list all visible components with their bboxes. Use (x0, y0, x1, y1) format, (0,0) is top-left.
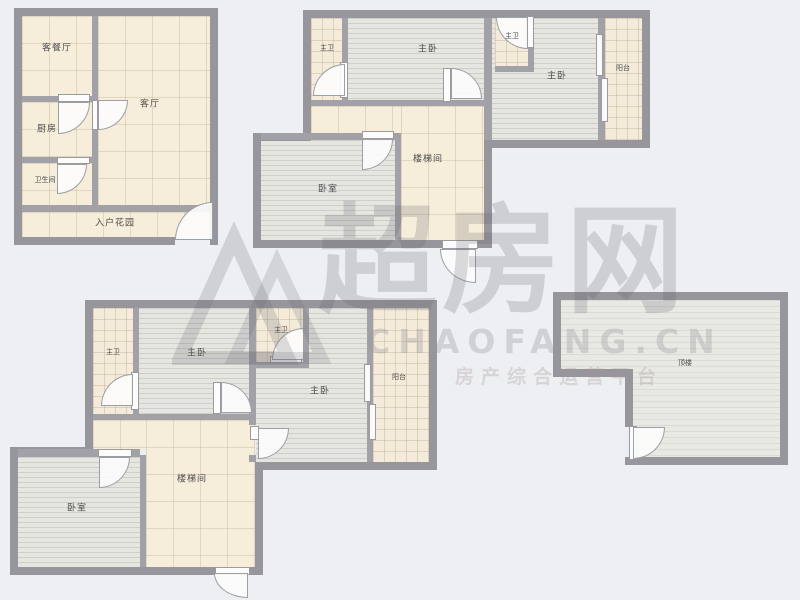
wall-segment (14, 237, 175, 245)
room-label-master-bath-1: 主卫 (106, 347, 120, 357)
wall-segment (85, 300, 437, 308)
entry-door-arc (440, 249, 476, 283)
room-label-bathroom: 卫生间 (35, 175, 56, 185)
wall-segment (553, 292, 788, 300)
wall-segment (10, 567, 215, 575)
wall-segment (625, 457, 788, 465)
wall-segment (263, 462, 437, 470)
wall-segment (625, 369, 633, 427)
room-label-dining: 客餐厅 (42, 41, 72, 54)
room-label-master-bed-1: 主卧 (187, 346, 207, 359)
wall-segment (484, 140, 492, 248)
room-balcony (373, 308, 429, 462)
wall-segment (253, 240, 448, 248)
door-leaf (442, 240, 478, 249)
wall-segment (10, 447, 18, 575)
sliding-door (601, 78, 608, 122)
room-label-stairwell: 楼梯间 (177, 472, 207, 485)
wall-segment (311, 100, 484, 106)
room-label-entry-garden: 入户花园 (95, 216, 135, 229)
wall-segment (553, 292, 561, 377)
door-leaf (362, 131, 394, 139)
wall-segment (249, 455, 256, 462)
room-balcony (605, 18, 642, 140)
wall-segment (495, 66, 534, 72)
wall-segment (303, 10, 650, 18)
room-label-bedroom: 卧室 (318, 182, 338, 195)
wall-segment (484, 140, 650, 148)
wall-segment (253, 133, 261, 248)
floor-plan-2: 主卫 主卧 主卫 主卧 阳台 楼梯间 卧室 (253, 10, 650, 286)
floor-plan-1: 客餐厅 厨房 卫生间 客厅 入户花园 (14, 8, 218, 280)
room-roof (561, 300, 780, 377)
door-leaf (213, 382, 221, 414)
wall-segment (93, 414, 255, 420)
wall-segment (14, 8, 22, 245)
room-label-kitchen: 厨房 (37, 122, 57, 135)
wall-segment (553, 369, 633, 377)
wall-segment (250, 567, 263, 575)
room-label-master-bath-2: 主卫 (505, 31, 519, 41)
room-label-master-bath-2: 主卫 (274, 325, 288, 335)
wall-segment (22, 205, 210, 212)
wall-segment (140, 455, 146, 567)
sliding-door (369, 404, 376, 440)
room-label-stairwell: 楼梯间 (413, 152, 443, 165)
room-stairwell (401, 106, 484, 240)
door-leaf (57, 157, 90, 164)
floor-plan-4: 顶楼 (553, 292, 788, 465)
wall-segment (642, 10, 650, 148)
room-label-balcony: 阳台 (616, 63, 630, 73)
room-label-bedroom: 卧室 (67, 501, 87, 514)
door-leaf (443, 68, 451, 102)
door-leaf (98, 449, 132, 457)
wall-segment (429, 300, 437, 470)
floor-plan-3: 主卫 主卧 主卫 主卧 阳台 楼梯间 卧室 (10, 300, 437, 600)
wall-segment (303, 10, 311, 141)
room-label-master-bed-2: 主卧 (547, 69, 567, 82)
room-label-master-bath-1: 主卫 (320, 43, 334, 53)
wall-segment (255, 462, 263, 575)
wall-segment (780, 292, 788, 465)
wall-segment (395, 140, 401, 240)
room-stairwell (146, 420, 255, 567)
floorplan-canvas: 客餐厅 厨房 卫生间 客厅 入户花园 (0, 0, 800, 600)
wall-segment (14, 8, 218, 16)
door-leaf (58, 94, 90, 102)
wall-segment (484, 18, 492, 140)
wall-segment (85, 300, 93, 455)
room-label-balcony: 阳台 (392, 372, 406, 382)
room-label-master-bed-1: 主卧 (418, 42, 438, 55)
sliding-door (364, 364, 371, 402)
room-label-roof: 顶楼 (678, 358, 692, 368)
entry-door-arc (214, 573, 248, 598)
room-dining (22, 16, 92, 96)
room-label-master-bed-2: 主卧 (310, 384, 330, 397)
room-label-living: 客厅 (140, 97, 160, 110)
sliding-door (596, 34, 603, 76)
